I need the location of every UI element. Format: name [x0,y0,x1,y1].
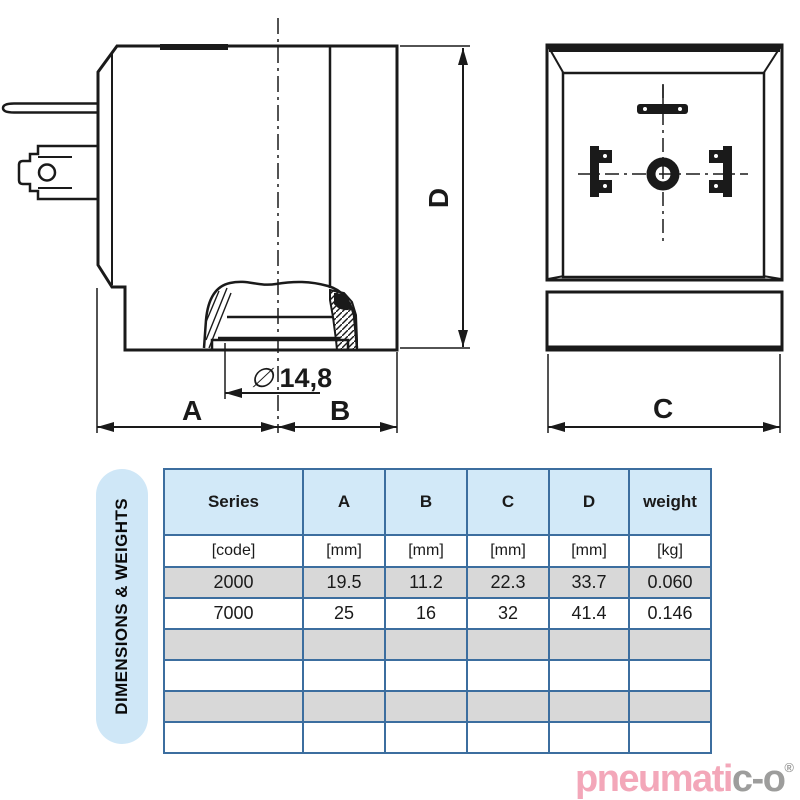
dimensions-table: Series A B C D weight [code] [mm] [mm] [… [163,468,712,754]
registered-trademark-symbol: ® [784,761,794,774]
cell-series: 7000 [164,598,303,629]
header-cell-c: C [467,469,549,535]
section-label-pill: DIMENSIONS & WEIGHTS [96,469,148,744]
table-empty-row [164,629,711,660]
unit-cell: [code] [164,535,303,567]
side-view-drawing: ∅14,8 A B D [3,18,470,433]
header-cell-d: D [549,469,629,535]
unit-cell: [mm] [549,535,629,567]
datasheet-page: ∅14,8 A B D [0,0,800,800]
cell-d: 33.7 [549,567,629,598]
table-units-row: [code] [mm] [mm] [mm] [mm] [kg] [164,535,711,567]
spade-connector [19,146,97,199]
table-empty-row [164,660,711,691]
dim-a-label: A [182,395,202,426]
front-top-bar [637,104,688,114]
cell-a: 25 [303,598,385,629]
header-cell-series: Series [164,469,303,535]
brand-logo: pneumati c-o ® [575,760,794,798]
unit-cell: [mm] [303,535,385,567]
connector-pin [3,104,97,113]
header-cell-b: B [385,469,467,535]
table-row-series-7000: 7000 25 16 32 41.4 0.146 [164,598,711,629]
dim-c-label: C [653,393,673,424]
brand-logo-text-primary: pneumati [575,760,732,798]
cell-b: 11.2 [385,567,467,598]
table-empty-row [164,722,711,753]
front-left-bracket [590,146,612,197]
unit-cell: [mm] [385,535,467,567]
front-right-bracket [709,146,732,197]
cell-weight: 0.146 [629,598,711,629]
cell-series: 2000 [164,567,303,598]
coil-technical-drawing: ∅14,8 A B D [0,0,800,460]
header-cell-weight: weight [629,469,711,535]
cell-d: 41.4 [549,598,629,629]
mounting-collar [204,282,357,350]
dim-d: D [400,46,470,348]
front-base-band [547,292,782,350]
unit-cell: [kg] [629,535,711,567]
table-empty-row [164,691,711,722]
connector-hole [39,165,55,181]
dim-c: C [548,354,780,433]
cell-a: 19.5 [303,567,385,598]
cell-c: 22.3 [467,567,549,598]
section-label: DIMENSIONS & WEIGHTS [112,498,132,715]
brand-logo-text-secondary: c-o [732,760,785,798]
table-header-row: Series A B C D weight [164,469,711,535]
header-cell-a: A [303,469,385,535]
dim-diameter-label: ∅14,8 [250,363,332,393]
cell-b: 16 [385,598,467,629]
cell-weight: 0.060 [629,567,711,598]
front-view-drawing: C [547,45,782,433]
table-row-series-2000: 2000 19.5 11.2 22.3 33.7 0.060 [164,567,711,598]
dim-d-label: D [423,188,454,208]
dim-b-label: B [330,395,350,426]
cell-c: 32 [467,598,549,629]
unit-cell: [mm] [467,535,549,567]
